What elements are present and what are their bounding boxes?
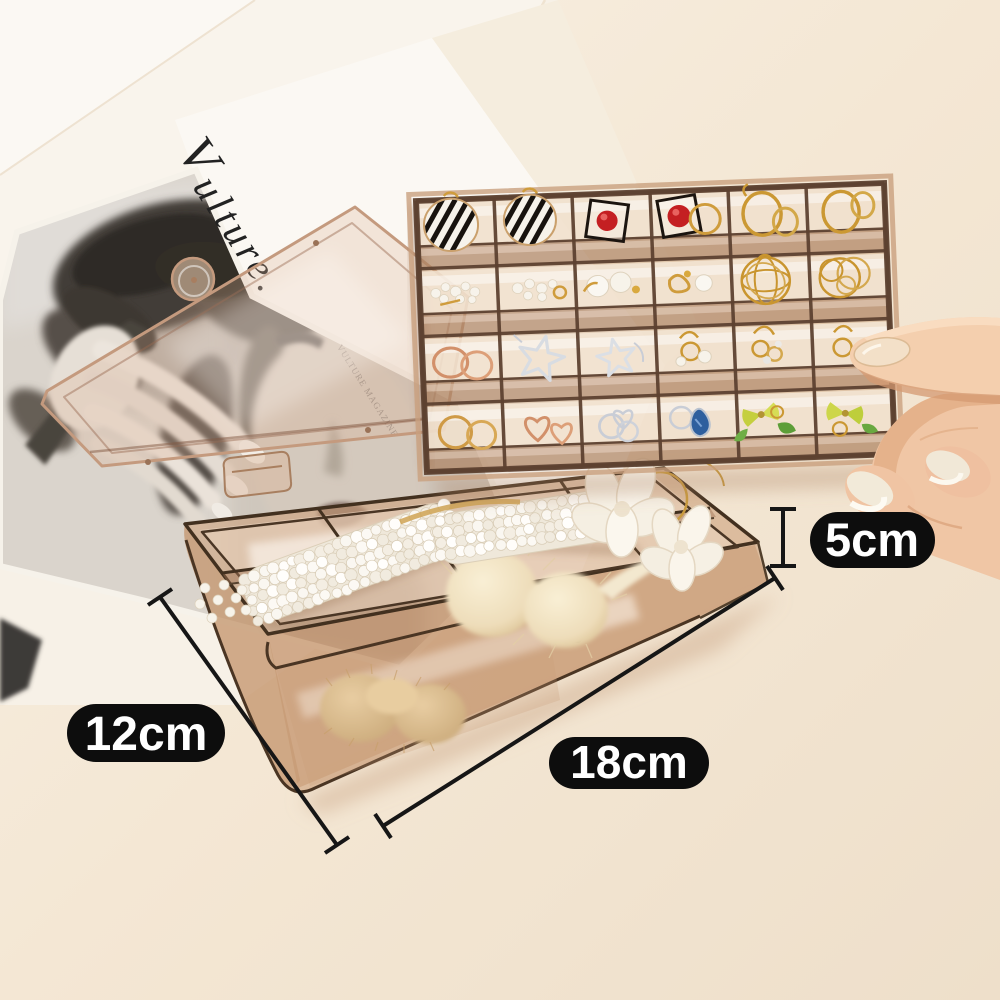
svg-text:5cm: 5cm [825, 513, 919, 566]
svg-text:12cm: 12cm [85, 708, 208, 761]
svg-text:18cm: 18cm [570, 736, 688, 788]
